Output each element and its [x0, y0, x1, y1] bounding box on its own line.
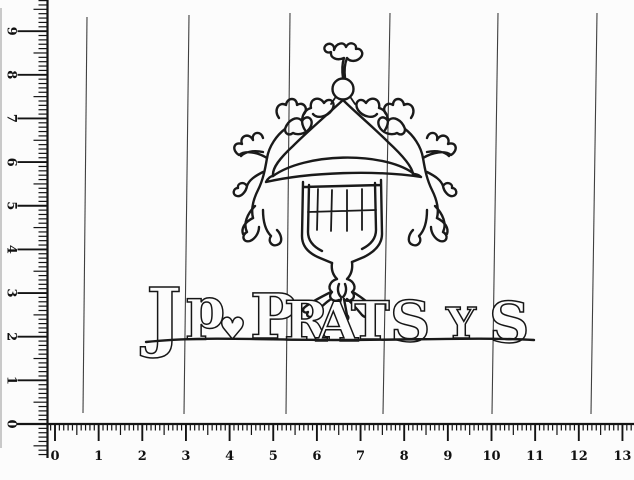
- v-ruler-number: 8: [4, 70, 19, 79]
- vertical-ruler-labels: 0123456789: [3, 27, 18, 429]
- chain-line: [184, 15, 189, 414]
- supporter-wing: [234, 133, 267, 158]
- chain-line: [591, 13, 597, 414]
- chain-line: [383, 13, 390, 414]
- v-ruler-number: 0: [4, 419, 19, 428]
- v-ruler-number: 4: [4, 245, 19, 254]
- watermark-emblem: [234, 43, 457, 320]
- v-ruler-number: 7: [4, 114, 19, 123]
- chain-line: [83, 17, 87, 413]
- vertical-ruler: 0123456789: [3, 0, 47, 458]
- h-ruler-number: 11: [526, 449, 544, 464]
- horizontal-ruler-labels: 012345678910111213: [50, 449, 631, 464]
- h-ruler-number: 10: [482, 449, 500, 464]
- h-ruler-number: 5: [269, 449, 278, 464]
- h-ruler-number: 12: [570, 449, 588, 464]
- watermark-letter: S: [390, 289, 430, 355]
- foliage-sprig: [302, 99, 333, 130]
- supporter-arm-heart-paw: [234, 172, 263, 196]
- v-ruler-number: 2: [4, 332, 19, 341]
- supporter-body: [252, 129, 285, 218]
- h-ruler-number: 1: [94, 449, 103, 464]
- horizontal-ruler: 012345678910111213: [17, 424, 634, 464]
- scanned-watermark-image: 0123456789 012345678910111213: [0, 0, 634, 480]
- watermark-letter: ♥: [219, 312, 246, 347]
- watermark-letter: T: [351, 291, 390, 352]
- h-ruler-number: 7: [356, 449, 365, 464]
- h-ruler-number: 13: [613, 449, 631, 464]
- watermark-letter: S: [489, 290, 529, 356]
- v-ruler-number: 6: [4, 158, 19, 167]
- dome-rim: [266, 158, 421, 182]
- watermark-letter: J: [140, 271, 182, 360]
- watermark-letter: Y: [445, 299, 477, 348]
- h-ruler-number: 6: [312, 449, 321, 464]
- h-ruler-number: 2: [138, 449, 147, 464]
- h-ruler-number: 9: [443, 449, 452, 464]
- watermark-letters: Jp♥PRATSYS: [140, 271, 529, 360]
- v-ruler-number: 9: [3, 27, 18, 36]
- shield-border: [302, 180, 382, 263]
- h-ruler-number: 3: [181, 449, 190, 464]
- finial-ornament: [324, 43, 362, 78]
- chain-line: [286, 13, 290, 414]
- orb-circle: [333, 79, 354, 100]
- supporter-crest: [277, 99, 306, 118]
- v-ruler-number: 1: [4, 376, 19, 385]
- right-supporter-dragon: [378, 99, 456, 245]
- v-ruler-number: 5: [4, 201, 19, 210]
- h-ruler-number: 4: [225, 449, 234, 464]
- h-ruler-number: 0: [50, 449, 59, 464]
- h-ruler-number: 8: [400, 449, 409, 464]
- v-ruler-number: 3: [4, 289, 19, 298]
- shield-stripes: [308, 189, 376, 231]
- foliage-sprig-right: [356, 99, 387, 130]
- horizontal-ruler-ticks: [51, 424, 632, 441]
- scan-edge-artifact: [0, 8, 2, 448]
- supporter-legs: [242, 206, 281, 245]
- vertical-ruler-ticks: [18, 1, 48, 455]
